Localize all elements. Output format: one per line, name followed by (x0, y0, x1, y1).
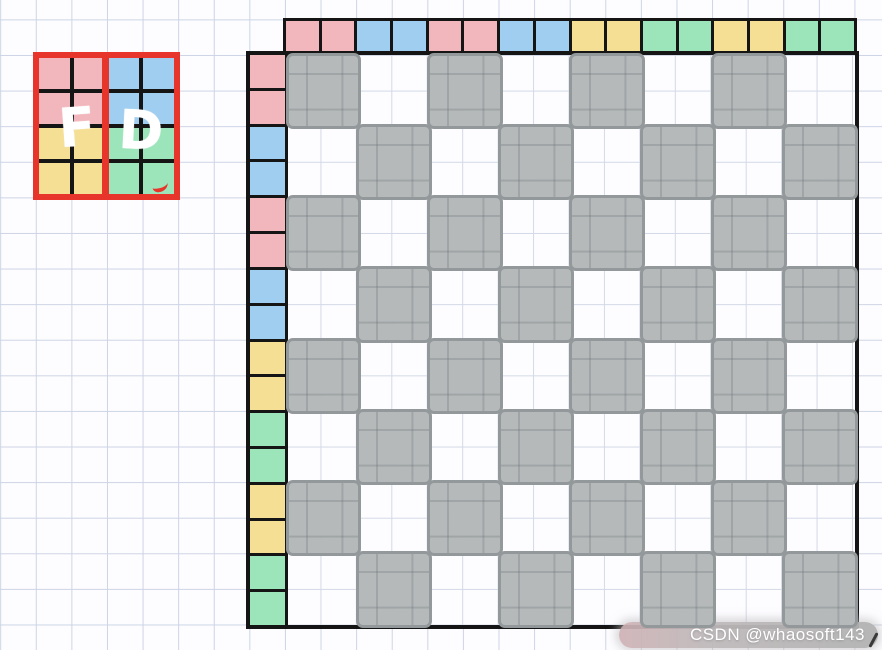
board-cell-masked (359, 269, 430, 340)
masked-block (427, 480, 503, 556)
board-cell-masked (572, 483, 643, 554)
board-cell-masked (713, 483, 784, 554)
top-strip-cell-green (821, 21, 854, 52)
masked-block (711, 480, 787, 556)
top-strip-cell-blue (357, 21, 390, 52)
left-strip-cell-green (250, 449, 285, 482)
left-strip-cell-pink (250, 55, 285, 88)
top-strip-cell-blue (393, 21, 426, 52)
board-cell-masked (501, 554, 572, 625)
board-cell-open (430, 126, 501, 197)
board-cell-open (359, 340, 430, 411)
masked-block (286, 195, 362, 271)
board-cell-open (572, 269, 643, 340)
board-cell-masked (501, 411, 572, 482)
legend-cell-yellow (74, 163, 105, 194)
top-strip-cell-green (679, 21, 712, 52)
board-cell-open (501, 198, 572, 269)
masked-block (498, 124, 574, 200)
board-cell-masked (713, 340, 784, 411)
board-cell-masked (288, 483, 359, 554)
board-cell-masked (713, 55, 784, 126)
left-strip-cell-yellow (250, 521, 285, 554)
watermark-text: CSDN @whaosoft143 (690, 625, 865, 645)
legend-cell-blue (143, 58, 174, 89)
board-cell-masked (430, 483, 501, 554)
left-strip-cell-green (250, 556, 285, 589)
masked-block (640, 551, 716, 627)
board-cell-masked (572, 55, 643, 126)
board-cell-masked (572, 340, 643, 411)
board-cell-masked (430, 340, 501, 411)
top-strip-cell-blue (536, 21, 569, 52)
top-strip-cell-pink (286, 21, 319, 52)
board-cell-masked (713, 198, 784, 269)
board-cell-open (430, 554, 501, 625)
left-strip-cell-yellow (250, 485, 285, 518)
masked-block (427, 338, 503, 414)
masked-block (711, 53, 787, 129)
top-strip-cell-yellow (572, 21, 605, 52)
legend-cell-blue (109, 58, 140, 89)
board-cell-masked (784, 411, 855, 482)
board-cell-open (572, 126, 643, 197)
board-cell-open (713, 554, 784, 625)
mask-grid-frame (246, 51, 859, 629)
masked-block (498, 409, 574, 485)
board-cell-open (501, 55, 572, 126)
masked-block (356, 124, 432, 200)
top-strip-cell-pink (464, 21, 497, 52)
masked-block (569, 480, 645, 556)
top-strip-cell-blue (500, 21, 533, 52)
board-cell-masked (784, 126, 855, 197)
board-cell-masked (572, 198, 643, 269)
masked-block (569, 338, 645, 414)
board-cell-masked (501, 269, 572, 340)
board-cell-open (359, 55, 430, 126)
board-cell-masked (288, 55, 359, 126)
legend-cell-pink (74, 58, 105, 89)
board-cell-open (288, 411, 359, 482)
left-strip-cell-blue (250, 127, 285, 160)
legend-letter-f: F (57, 100, 98, 156)
legend-letter-d: D (117, 103, 165, 159)
board-cell-masked (359, 411, 430, 482)
top-strip-cell-yellow (714, 21, 747, 52)
board-cell-masked (784, 269, 855, 340)
left-strip-cell-yellow (250, 342, 285, 375)
masked-block (782, 551, 858, 627)
board-cell-masked (642, 126, 713, 197)
masked-block (569, 195, 645, 271)
board-cell-open (713, 269, 784, 340)
board-cell-open (430, 411, 501, 482)
board-cell-masked (642, 554, 713, 625)
masked-block (711, 338, 787, 414)
masked-block (782, 409, 858, 485)
board-cell-open (501, 483, 572, 554)
top-strip-cell-green (643, 21, 676, 52)
board-cell-masked (359, 554, 430, 625)
masked-block (569, 53, 645, 129)
masked-block (640, 409, 716, 485)
board-cell-open (359, 198, 430, 269)
board-cell-open (784, 198, 855, 269)
board-cell-masked (642, 411, 713, 482)
masked-block (286, 338, 362, 414)
graph-paper-canvas: F D CSDN @whaosoft143 (0, 0, 882, 650)
legend-red-divider (102, 52, 109, 200)
legend-cell-pink (39, 58, 70, 89)
top-strip-cell-green (786, 21, 819, 52)
board-cell-open (713, 411, 784, 482)
legend-cell-yellow (39, 163, 70, 194)
masked-block (286, 480, 362, 556)
top-strip-cell-pink (429, 21, 462, 52)
checkerboard (288, 55, 855, 625)
board-cell-masked (430, 198, 501, 269)
masked-block (356, 551, 432, 627)
masked-block (640, 266, 716, 342)
board-cell-open (501, 340, 572, 411)
left-strip-cell-pink (250, 234, 285, 267)
board-cell-open (572, 554, 643, 625)
board-cell-open (288, 126, 359, 197)
board-cell-masked (784, 554, 855, 625)
masked-block (427, 53, 503, 129)
board-cell-open (430, 269, 501, 340)
left-index-strip (250, 55, 288, 625)
top-index-strip (283, 18, 857, 55)
board-cell-masked (642, 269, 713, 340)
board-cell-open (288, 269, 359, 340)
board-cell-open (642, 483, 713, 554)
board-cell-open (359, 483, 430, 554)
masked-block (427, 195, 503, 271)
left-strip-cell-blue (250, 306, 285, 339)
top-strip-cell-yellow (750, 21, 783, 52)
board-cell-masked (501, 126, 572, 197)
board-cell-open (784, 483, 855, 554)
masked-block (498, 266, 574, 342)
masked-block (498, 551, 574, 627)
masked-block (782, 124, 858, 200)
masked-block (286, 53, 362, 129)
masked-block (356, 409, 432, 485)
board-cell-open (642, 55, 713, 126)
board-cell-masked (430, 55, 501, 126)
left-strip-cell-green (250, 413, 285, 446)
legend-cell-green (109, 163, 140, 194)
board-cell-masked (288, 198, 359, 269)
top-strip-cell-pink (322, 21, 355, 52)
left-strip-cell-pink (250, 91, 285, 124)
top-strip-cell-yellow (607, 21, 640, 52)
left-strip-cell-blue (250, 270, 285, 303)
left-strip-cell-pink (250, 198, 285, 231)
board-cell-masked (288, 340, 359, 411)
masked-block (711, 195, 787, 271)
left-strip-cell-green (250, 592, 285, 625)
masked-block (640, 124, 716, 200)
board-cell-open (784, 340, 855, 411)
board-cell-open (288, 554, 359, 625)
board-cell-open (784, 55, 855, 126)
masked-block (782, 266, 858, 342)
board-cell-masked (359, 126, 430, 197)
board-cell-open (642, 340, 713, 411)
board-cell-open (572, 411, 643, 482)
left-strip-cell-blue (250, 162, 285, 195)
masked-block (356, 266, 432, 342)
board-cell-open (642, 198, 713, 269)
board-cell-open (713, 126, 784, 197)
left-strip-cell-yellow (250, 377, 285, 410)
